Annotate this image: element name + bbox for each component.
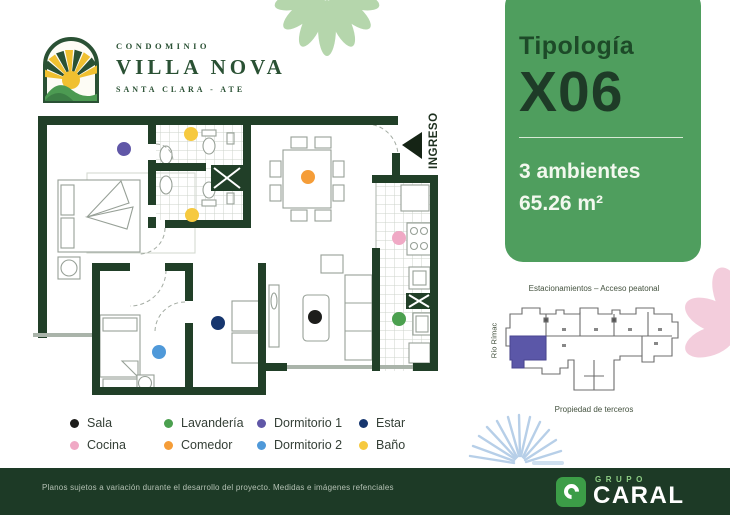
- legend-item-cocina: Cocina: [70, 438, 164, 452]
- typology-ambientes: 3 ambientes: [519, 156, 683, 189]
- room-dot-comedor: [301, 170, 315, 184]
- lavanderia-dot-icon: [164, 419, 173, 428]
- legend-item-comedor: Comedor: [164, 438, 257, 452]
- footer-bar: Planos sujetos a variación durante el de…: [0, 468, 730, 515]
- site-plan-bottom-label: Propiedad de terceros: [486, 405, 702, 414]
- legend-label: Dormitorio 1: [274, 416, 342, 430]
- typology-label: Tipología: [519, 32, 683, 61]
- legend-label: Lavandería: [181, 416, 244, 430]
- brand-condominio-label: CONDOMINIO: [116, 41, 286, 51]
- caral-icon: [556, 477, 586, 507]
- brand-name: VILLA NOVA: [116, 55, 286, 80]
- typology-area: 65.26 m²: [519, 188, 683, 221]
- legend-item-dormitorio-2: Dormitorio 2: [257, 438, 359, 452]
- ingreso-label: INGRESO: [428, 112, 440, 169]
- legend-item-sala: Sala: [70, 416, 164, 430]
- ingreso-marker: INGRESO: [402, 112, 440, 169]
- legend-label: Cocina: [87, 438, 126, 452]
- legend-item-dormitorio-1: Dormitorio 1: [257, 416, 359, 430]
- room-dot-cocina: [392, 231, 406, 245]
- blue-fan-decoration: [458, 412, 566, 468]
- site-plan: Estacionamientos – Acceso peatonal Río R…: [486, 284, 702, 414]
- room-dot-dormitorio-2: [152, 345, 166, 359]
- typology-panel: Tipología X06 3 ambientes 65.26 m²: [505, 0, 701, 262]
- ingreso-arrow-icon: [402, 132, 422, 159]
- footer-disclaimer: Planos sujetos a variación durante el de…: [42, 483, 394, 492]
- legend-item-bano: Baño: [359, 438, 431, 452]
- legend-item-estar: Estar: [359, 416, 431, 430]
- caral-company-name: CARAL: [593, 484, 685, 508]
- room-dot-bano-2: [185, 208, 199, 222]
- floor-plan: INGRESO: [25, 105, 465, 405]
- grupo-caral-logo: GRUPO CARAL: [556, 475, 685, 508]
- site-plan-left-label: Río Rímac: [490, 317, 499, 365]
- brand-location: SANTA CLARA - ATE: [116, 85, 286, 94]
- typology-code: X06: [519, 63, 683, 123]
- brand-logo: CONDOMINIO VILLA NOVA SANTA CLARA - ATE: [40, 30, 286, 104]
- room-dot-dormitorio-1: [117, 142, 131, 156]
- site-plan-top-label: Estacionamientos – Acceso peatonal: [486, 284, 702, 293]
- legend-label: Estar: [376, 416, 405, 430]
- room-dot-sala: [308, 310, 322, 324]
- room-dot-lavanderia: [392, 312, 406, 326]
- legend-label: Dormitorio 2: [274, 438, 342, 452]
- panel-divider: [519, 137, 683, 138]
- brochure-page: CONDOMINIO VILLA NOVA SANTA CLARA - ATE …: [0, 0, 730, 515]
- site-plan-drawing: [502, 298, 688, 398]
- dormitorio-2-dot-icon: [257, 441, 266, 450]
- villa-nova-arch-icon: [40, 30, 102, 104]
- room-dot-bano-1: [184, 127, 198, 141]
- room-legend: Sala Lavandería Dormitorio 1 Estar Cocin…: [70, 416, 440, 452]
- sala-dot-icon: [70, 419, 79, 428]
- green-flower-decoration: [272, 0, 382, 60]
- comedor-dot-icon: [164, 441, 173, 450]
- cocina-dot-icon: [70, 441, 79, 450]
- legend-label: Comedor: [181, 438, 232, 452]
- caral-swirl-icon: [560, 481, 581, 502]
- legend-label: Baño: [376, 438, 405, 452]
- legend-label: Sala: [87, 416, 112, 430]
- legend-item-lavanderia: Lavandería: [164, 416, 257, 430]
- dormitorio-1-dot-icon: [257, 419, 266, 428]
- bano-dot-icon: [359, 441, 368, 450]
- estar-dot-icon: [359, 419, 368, 428]
- room-dot-estar: [211, 316, 225, 330]
